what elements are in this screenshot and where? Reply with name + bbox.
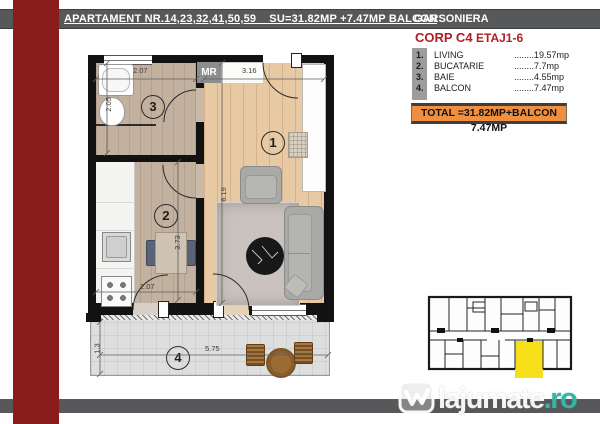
legend-num: 3. bbox=[416, 72, 428, 82]
accent-red-bar bbox=[13, 0, 59, 424]
balcony-chair bbox=[246, 344, 265, 366]
armchair bbox=[240, 166, 282, 204]
dim-kitchen-length: 3.73 bbox=[173, 235, 182, 250]
total-area-box: TOTAL =31.82MP+BALCON 7.47MP bbox=[411, 103, 567, 124]
kitchen-table bbox=[155, 232, 187, 274]
listing-floorplan-image: APARTAMENT NR.14,23,32,41,50,59 SU=31.82… bbox=[0, 0, 600, 424]
dim-living-height: 6.19 bbox=[219, 187, 228, 202]
kitchen-door-gap bbox=[196, 164, 204, 198]
dim-living-width: 3.16 bbox=[242, 66, 257, 75]
balcony-stub-left bbox=[86, 313, 101, 322]
legend-name: BUCATARIE bbox=[434, 61, 484, 71]
legend-num: 1. bbox=[416, 50, 428, 60]
wall-bath-kitchen bbox=[96, 155, 198, 162]
watermark-text: lajumate.ro bbox=[438, 383, 576, 416]
building-key-plan bbox=[427, 294, 575, 382]
bathtub bbox=[98, 64, 134, 96]
wall-left bbox=[88, 55, 96, 315]
balcony-stub-right bbox=[317, 313, 334, 322]
balcony-chair bbox=[294, 342, 313, 364]
legend-name: BAIE bbox=[434, 72, 455, 82]
room-number-living: 1 bbox=[261, 131, 285, 155]
entry-door-leaf bbox=[291, 53, 302, 68]
legend-num: 4. bbox=[416, 83, 428, 93]
sofa bbox=[284, 206, 324, 300]
wardrobe-tv-unit bbox=[302, 64, 326, 192]
highlighted-unit-balcony bbox=[515, 368, 543, 378]
legend-name: LIVING bbox=[434, 50, 464, 60]
dim-balcony-depth: 1.3 bbox=[93, 343, 102, 353]
room-number-kitchen: 2 bbox=[154, 204, 178, 228]
dim-kitchen-width: 2.07 bbox=[140, 282, 155, 291]
bathroom-door-gap bbox=[196, 88, 204, 122]
dim-balcony-length: 5.75 bbox=[205, 344, 220, 353]
apartment-type-label: GARSONIERA bbox=[414, 13, 489, 25]
mr-shaft-label: MR bbox=[197, 62, 221, 83]
room-number-bathroom: 3 bbox=[141, 95, 165, 119]
legend-value: ........4.55mp bbox=[514, 72, 564, 82]
entry-door-gap bbox=[263, 55, 293, 63]
lajumate-logo-icon bbox=[398, 380, 435, 414]
legend-num: 2. bbox=[416, 61, 428, 71]
kitchen-sink bbox=[102, 232, 131, 262]
balcony-table bbox=[266, 348, 296, 378]
kitchen-balcony-door-leaf bbox=[158, 301, 169, 318]
watermark-site: lajumate bbox=[438, 383, 544, 415]
corp-label: CORP C4 bbox=[415, 30, 473, 45]
highlighted-unit bbox=[515, 341, 543, 368]
doormat bbox=[288, 132, 308, 158]
legend-name: BALCON bbox=[434, 83, 471, 93]
dim-bath-width: 2.07 bbox=[133, 66, 148, 75]
dim-bath-height: 2.05 bbox=[104, 97, 113, 112]
watermark-tld: .ro bbox=[544, 383, 577, 415]
legend-value: ........7.47mp bbox=[514, 83, 564, 93]
room-number-balcony: 4 bbox=[166, 346, 190, 370]
legend-value: ........19.57mp bbox=[514, 50, 569, 60]
etaj-label: ETAJ1-6 bbox=[476, 31, 523, 45]
header-bar: APARTAMENT NR.14,23,32,41,50,59 SU=31.82… bbox=[0, 9, 600, 29]
stove bbox=[101, 276, 132, 307]
legend-value: ........7.7mp bbox=[514, 61, 559, 71]
apartment-title: APARTAMENT NR.14,23,32,41,50,59 SU=31.82… bbox=[64, 13, 437, 25]
